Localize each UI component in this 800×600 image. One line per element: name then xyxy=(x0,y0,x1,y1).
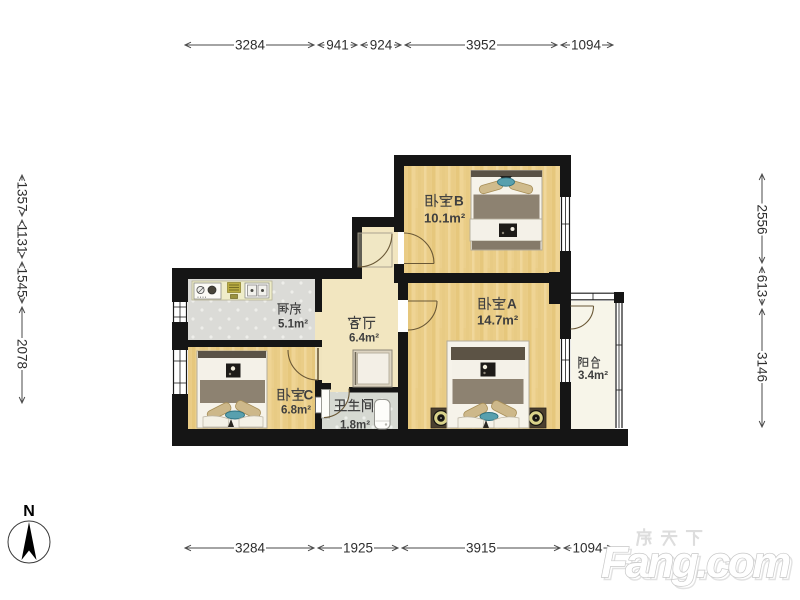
svg-text:1545: 1545 xyxy=(15,267,30,297)
svg-text:924: 924 xyxy=(370,38,393,53)
svg-text:613: 613 xyxy=(755,275,770,298)
svg-text:Fang.com: Fang.com xyxy=(601,538,790,587)
svg-text:A: A xyxy=(507,297,517,312)
svg-text:5.1m²: 5.1m² xyxy=(278,319,308,331)
svg-text:B: B xyxy=(454,194,464,209)
svg-text:6.4m²: 6.4m² xyxy=(349,333,379,345)
svg-text:1.8m²: 1.8m² xyxy=(340,420,370,432)
svg-text:2556: 2556 xyxy=(755,204,770,234)
svg-text:3915: 3915 xyxy=(466,541,496,556)
svg-text:2078: 2078 xyxy=(15,339,30,369)
svg-text:1094: 1094 xyxy=(572,541,603,556)
svg-text:1925: 1925 xyxy=(343,541,373,556)
svg-text:1357: 1357 xyxy=(15,181,30,211)
svg-text:1094: 1094 xyxy=(571,38,602,53)
svg-text:N: N xyxy=(23,503,35,520)
svg-text:941: 941 xyxy=(326,38,349,53)
svg-text:3284: 3284 xyxy=(235,541,266,556)
svg-text:C: C xyxy=(304,388,314,403)
svg-text:3952: 3952 xyxy=(466,38,496,53)
svg-text:10.1m²: 10.1m² xyxy=(424,211,466,226)
svg-text:14.7m²: 14.7m² xyxy=(477,313,519,328)
svg-text:1131: 1131 xyxy=(15,224,30,253)
svg-text:3.4m²: 3.4m² xyxy=(578,370,608,382)
svg-text:3146: 3146 xyxy=(755,352,770,382)
svg-text:6.8m²: 6.8m² xyxy=(281,405,311,417)
svg-text:3284: 3284 xyxy=(235,38,266,53)
